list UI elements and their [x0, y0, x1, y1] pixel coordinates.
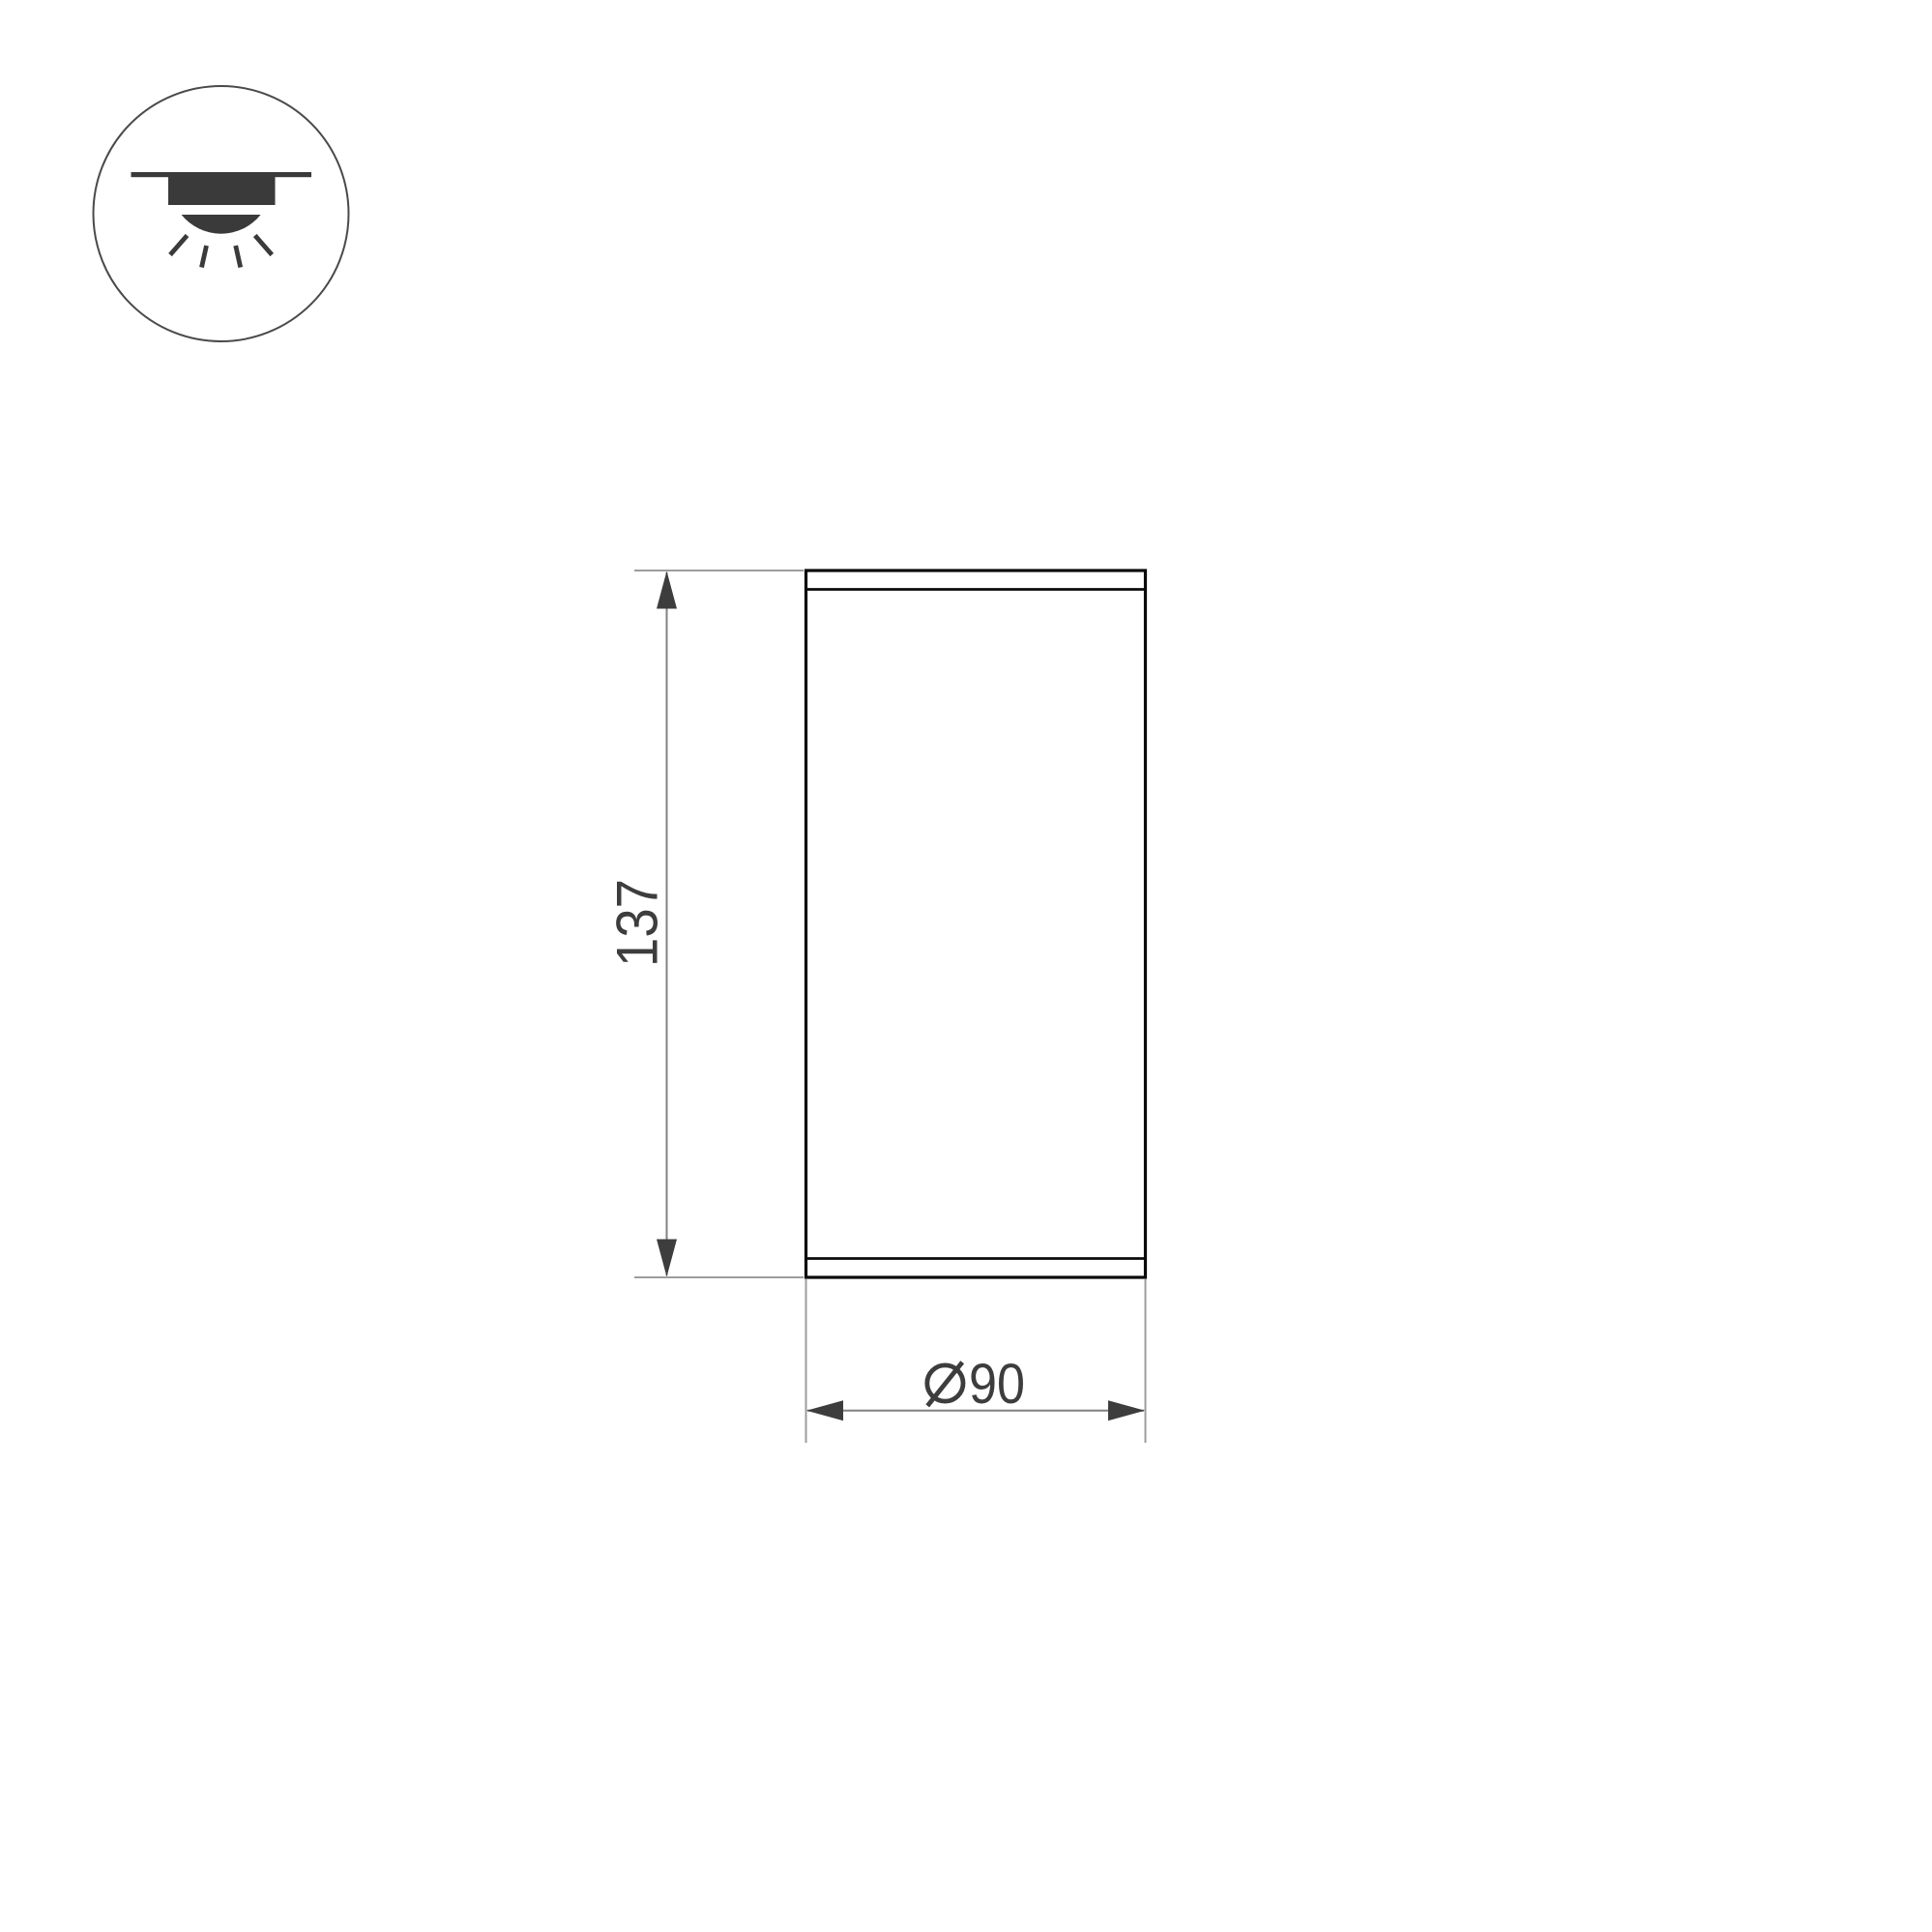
- svg-text:90: 90: [969, 1353, 1025, 1416]
- svg-text:137: 137: [605, 879, 670, 967]
